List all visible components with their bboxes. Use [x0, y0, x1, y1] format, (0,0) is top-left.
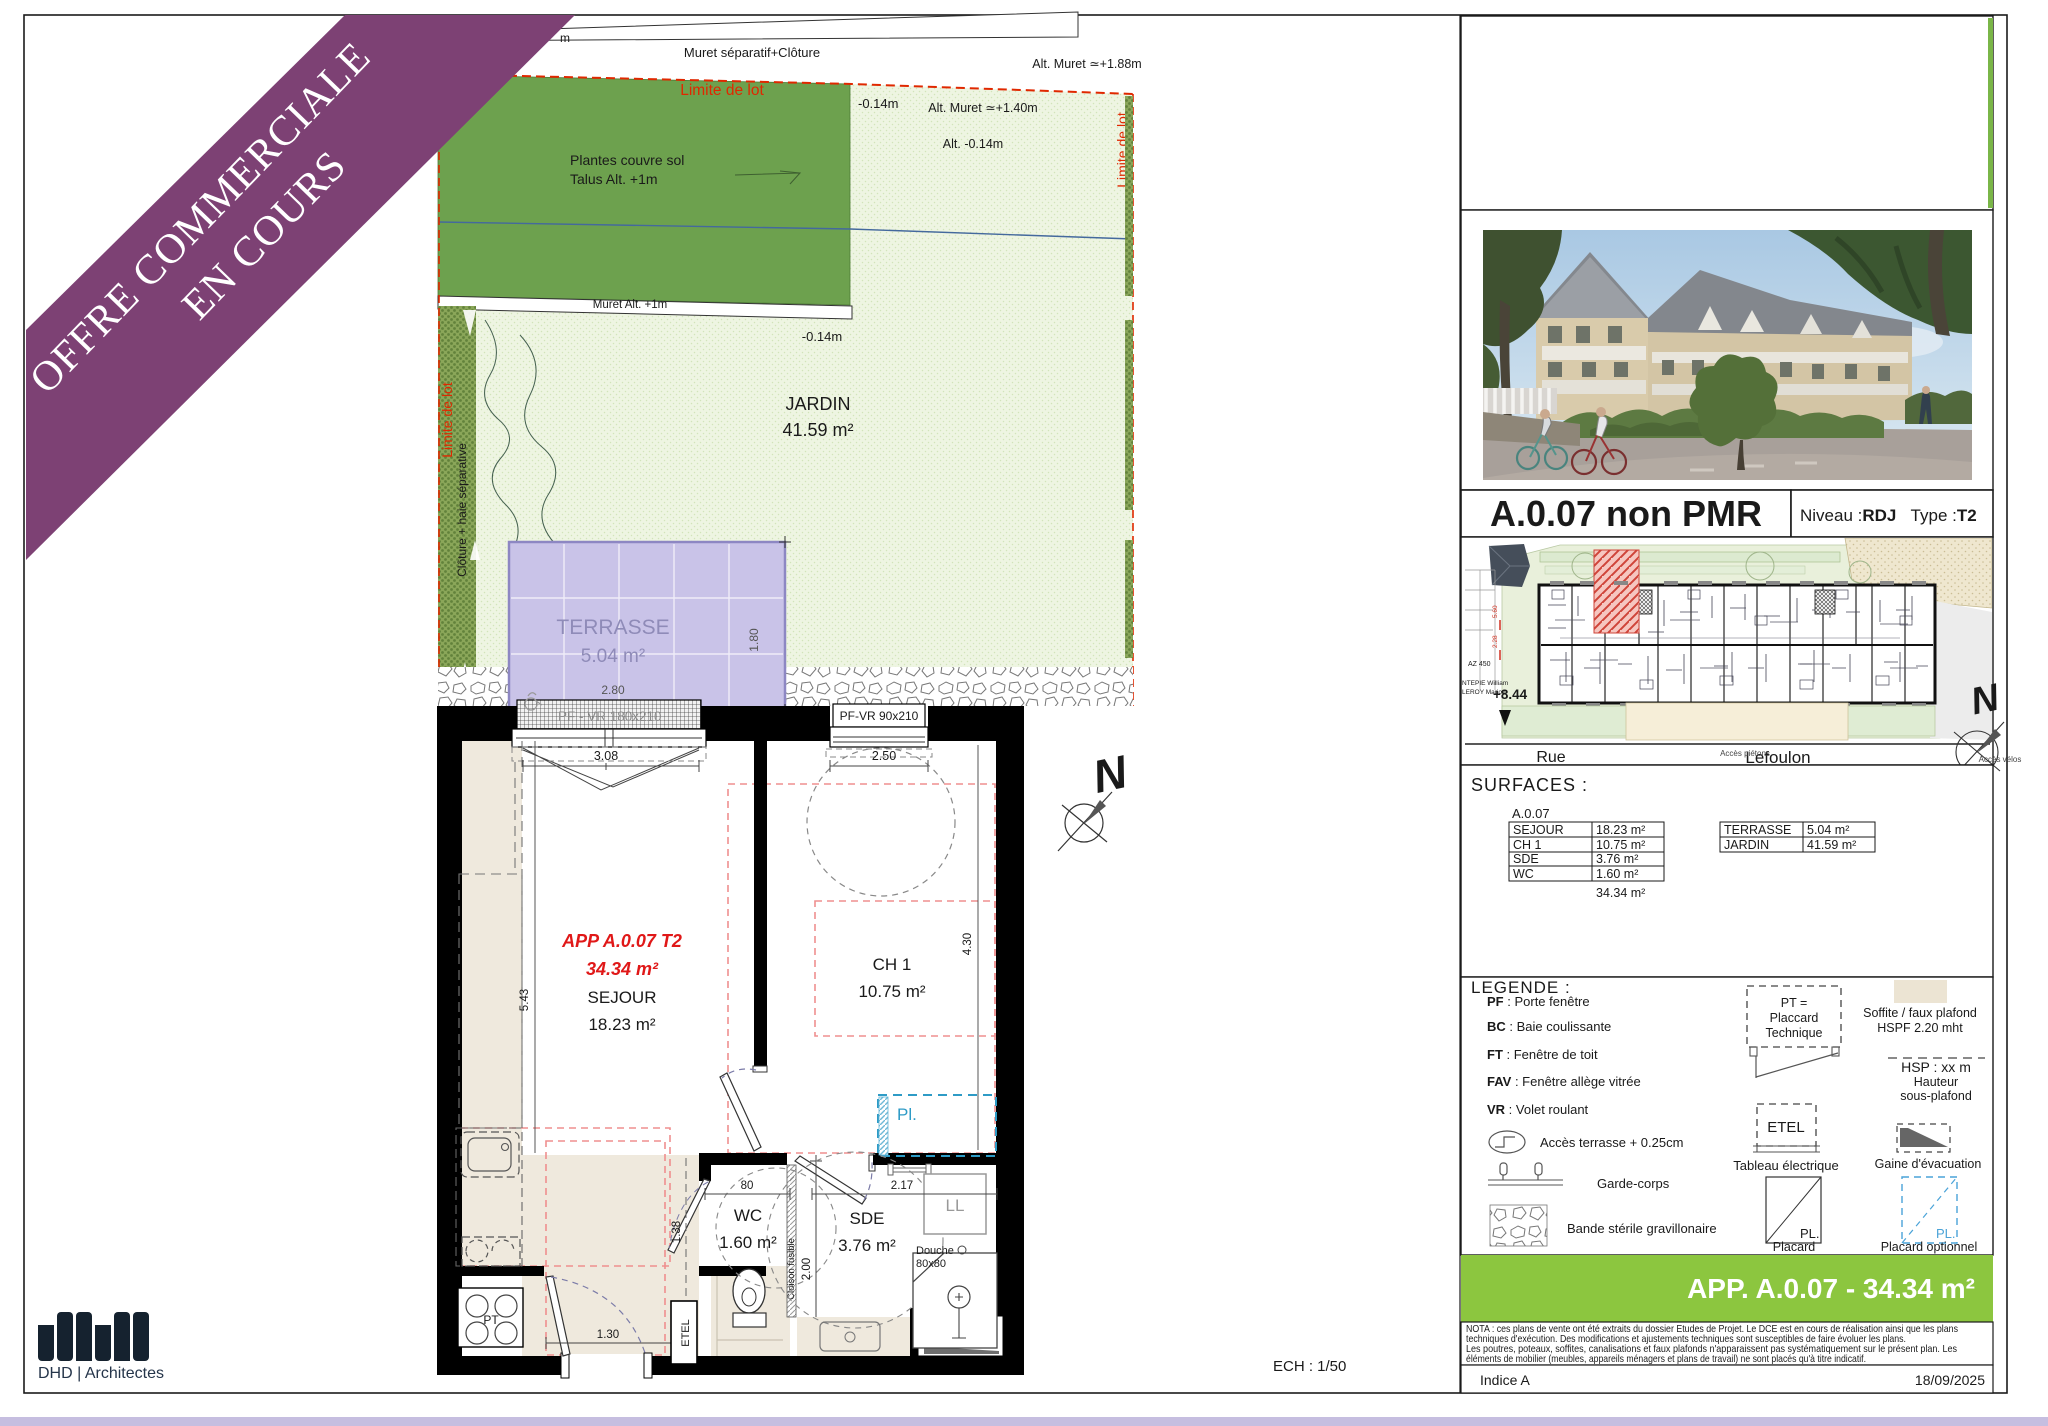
svg-text:2.50: 2.50	[872, 749, 896, 763]
svg-text:TERRASSE: TERRASSE	[556, 616, 669, 639]
svg-text:3.76 m²: 3.76 m²	[1596, 852, 1638, 866]
svg-text:CH 1: CH 1	[1513, 838, 1542, 852]
svg-text:JARDIN: JARDIN	[785, 394, 850, 414]
svg-text:34.34 m²: 34.34 m²	[586, 959, 659, 979]
svg-text:41.59 m²: 41.59 m²	[782, 420, 853, 440]
svg-text:41.59 m²: 41.59 m²	[1807, 838, 1856, 852]
svg-text:Indice A: Indice A	[1480, 1372, 1530, 1388]
svg-text:Alt. -0.14m: Alt. -0.14m	[943, 137, 1003, 151]
svg-text:A.0.07: A.0.07	[1512, 806, 1550, 821]
svg-text:m: m	[560, 31, 570, 45]
svg-text:NTEPIE William: NTEPIE William	[1462, 680, 1508, 687]
svg-text:WC: WC	[1513, 867, 1534, 881]
svg-text:34.34 m²: 34.34 m²	[1596, 886, 1645, 900]
svg-text:DHD | Architectes: DHD | Architectes	[38, 1365, 164, 1382]
svg-text:2.00: 2.00	[801, 1258, 813, 1280]
svg-text:AZ 450: AZ 450	[1468, 661, 1491, 668]
svg-text:2.28: 2.28	[1492, 635, 1499, 648]
svg-text:1.60 m²: 1.60 m²	[1596, 867, 1638, 881]
svg-text:SDE: SDE	[850, 1209, 885, 1228]
svg-text:1.30: 1.30	[597, 1329, 619, 1341]
svg-text:ECH : 1/50: ECH : 1/50	[1273, 1358, 1346, 1375]
svg-text:Bande stérile gravillonaire: Bande stérile gravillonaire	[1567, 1221, 1717, 1236]
svg-text:Alt. Muret ≃+1.88m: Alt. Muret ≃+1.88m	[1032, 57, 1141, 71]
svg-text:A.0.07 non PMR: A.0.07 non PMR	[1490, 493, 1762, 534]
svg-text:Hauteur: Hauteur	[1914, 1075, 1958, 1089]
svg-text:Cloison fusible: Cloison fusible	[786, 1238, 797, 1300]
svg-text:Clôture + haie séparative: Clôture + haie séparative	[455, 443, 469, 577]
svg-text:PF-VR 90x210: PF-VR 90x210	[840, 709, 919, 723]
svg-text:Alt. Muret ≃+1.40m: Alt. Muret ≃+1.40m	[928, 101, 1037, 115]
svg-text:BC : Baie coulissante: BC : Baie coulissante	[1487, 1019, 1611, 1034]
svg-text:4.30: 4.30	[962, 933, 974, 955]
svg-text:SEJOUR: SEJOUR	[588, 988, 657, 1007]
svg-text:Niveau :RDJ Type :T2: Niveau :RDJ Type :T2	[1800, 506, 1977, 525]
svg-text:1.38: 1.38	[671, 1221, 683, 1243]
svg-text:ETEL: ETEL	[680, 1319, 692, 1347]
svg-text:5.43: 5.43	[519, 989, 531, 1011]
svg-text:ETEL: ETEL	[1767, 1119, 1805, 1136]
svg-text:1.60 m²: 1.60 m²	[719, 1233, 777, 1252]
svg-text:3.08: 3.08	[594, 749, 618, 763]
svg-text:PL.: PL.	[1936, 1226, 1956, 1241]
svg-text:3.76 m²: 3.76 m²	[838, 1236, 896, 1255]
svg-text:TERRASSE: TERRASSE	[1724, 823, 1791, 837]
svg-text:80: 80	[741, 1180, 754, 1192]
svg-text:Accès vélos: Accès vélos	[1979, 755, 2022, 764]
svg-text:VR : Volet roulant: VR : Volet roulant	[1487, 1102, 1589, 1117]
svg-text:PF : Porte fenêtre: PF : Porte fenêtre	[1487, 994, 1590, 1009]
svg-text:Tableau électrique: Tableau électrique	[1733, 1158, 1839, 1173]
svg-text:10.75 m²: 10.75 m²	[858, 982, 925, 1001]
svg-text:Technique: Technique	[1766, 1026, 1823, 1040]
svg-text:Limite de lot: Limite de lot	[439, 382, 455, 458]
svg-text:FAV : Fenêtre allège vitrée: FAV : Fenêtre allège vitrée	[1487, 1074, 1641, 1089]
svg-text:2.80: 2.80	[601, 683, 625, 697]
svg-text:Douche: Douche	[916, 1245, 954, 1257]
svg-text:SEJOUR: SEJOUR	[1513, 823, 1564, 837]
svg-text:APP A.0.07 T2: APP A.0.07 T2	[561, 931, 682, 951]
svg-text:Pl.: Pl.	[897, 1105, 917, 1124]
svg-text:HSPF 2.20 mht: HSPF 2.20 mht	[1877, 1021, 1963, 1035]
svg-text:Plantes couvre sol: Plantes couvre sol	[570, 152, 684, 168]
svg-text:SURFACES :: SURFACES :	[1471, 775, 1588, 795]
svg-text:SDE: SDE	[1513, 852, 1539, 866]
svg-text:éléments de mobilier (meubles,: éléments de mobilier (meubles, appareils…	[1466, 1353, 1866, 1365]
svg-text:PF - VR 180x210: PF - VR 180x210	[558, 709, 662, 724]
svg-text:HSP : xx m: HSP : xx m	[1901, 1059, 1971, 1075]
svg-text:Accès terrasse + 0.25cm: Accès terrasse + 0.25cm	[1540, 1135, 1683, 1150]
svg-text:10.75 m²: 10.75 m²	[1596, 838, 1645, 852]
svg-text:Placard: Placard	[1773, 1240, 1815, 1254]
svg-text:Limite de lot: Limite de lot	[680, 82, 764, 99]
svg-text:LEROY Marion: LEROY Marion	[1462, 689, 1506, 696]
svg-text:Placcard: Placcard	[1770, 1011, 1819, 1025]
svg-text:Muret Alt. +1m: Muret Alt. +1m	[593, 299, 667, 311]
svg-text:18/09/2025: 18/09/2025	[1915, 1372, 1985, 1388]
svg-text:WC: WC	[734, 1206, 762, 1225]
svg-text:APP. A.0.07 - 34.34 m²: APP. A.0.07 - 34.34 m²	[1687, 1273, 1975, 1304]
svg-text:2.17: 2.17	[891, 1180, 913, 1192]
svg-text:JARDIN: JARDIN	[1724, 838, 1769, 852]
svg-text:CH 1: CH 1	[873, 955, 912, 974]
svg-text:FT : Fenêtre de toit: FT : Fenêtre de toit	[1487, 1047, 1598, 1062]
svg-text:18.23 m²: 18.23 m²	[1596, 823, 1645, 837]
svg-text:-0.14m: -0.14m	[858, 96, 898, 111]
svg-text:Soffite / faux plafond: Soffite / faux plafond	[1863, 1006, 1977, 1020]
svg-text:-0.14m: -0.14m	[802, 329, 842, 344]
svg-text:Accès piétons: Accès piétons	[1720, 749, 1770, 758]
svg-text:5.60: 5.60	[1492, 605, 1499, 618]
svg-text:Talus Alt. +1m: Talus Alt. +1m	[570, 171, 658, 187]
svg-text:5.04 m²: 5.04 m²	[581, 646, 645, 667]
svg-text:18.23 m²: 18.23 m²	[588, 1015, 655, 1034]
svg-text:Placard optionnel: Placard optionnel	[1881, 1240, 1978, 1254]
svg-text:80x80: 80x80	[916, 1258, 946, 1270]
svg-text:Garde-corps: Garde-corps	[1597, 1176, 1670, 1191]
svg-text:Gaine d'évacuation: Gaine d'évacuation	[1875, 1157, 1982, 1171]
svg-text:PT =: PT =	[1781, 996, 1808, 1010]
svg-text:PT: PT	[483, 1313, 499, 1327]
svg-text:1.80: 1.80	[747, 628, 761, 652]
svg-text:PL.: PL.	[1800, 1226, 1820, 1241]
svg-text:Rue: Rue	[1536, 749, 1565, 766]
svg-text:Muret séparatif+Clôture: Muret séparatif+Clôture	[684, 45, 820, 60]
svg-text:5.04 m²: 5.04 m²	[1807, 823, 1849, 837]
svg-text:sous-plafond: sous-plafond	[1900, 1089, 1972, 1103]
svg-text:LL: LL	[946, 1196, 965, 1215]
